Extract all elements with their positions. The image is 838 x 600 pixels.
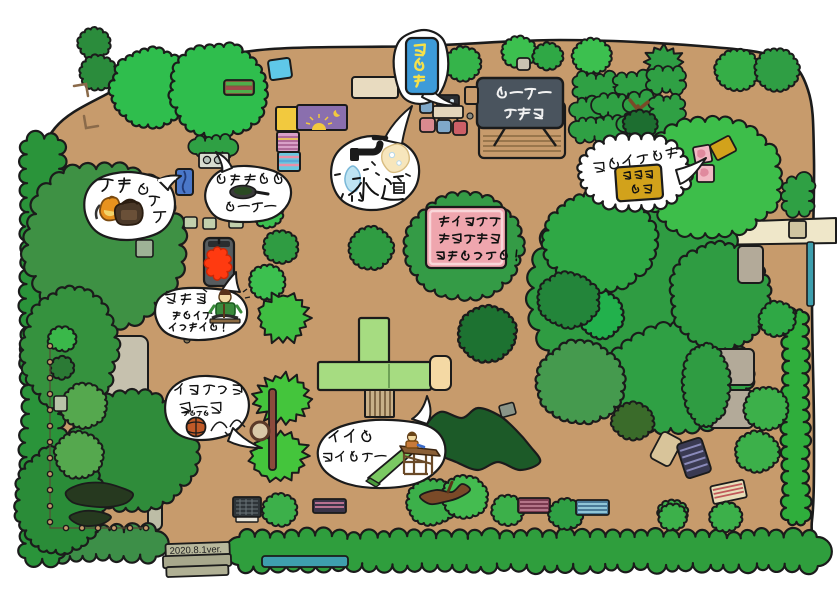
svg-text:2020.8.1ver.: 2020.8.1ver. xyxy=(169,544,222,557)
